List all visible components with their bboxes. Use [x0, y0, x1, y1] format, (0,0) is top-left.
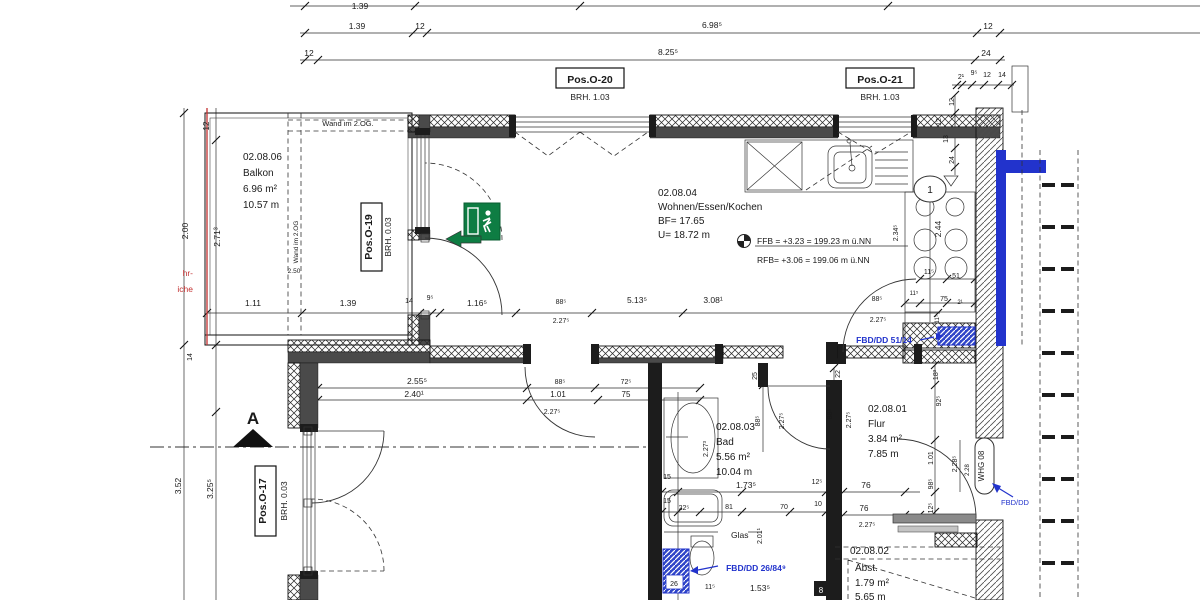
dimension-lines	[180, 2, 1200, 600]
dim-label: 92⁵	[936, 396, 943, 407]
dim-label: 2.27⁵	[870, 317, 887, 324]
dim-label: 72⁵	[621, 379, 632, 386]
dim-label: 75	[940, 296, 948, 303]
shower-tray	[664, 490, 722, 526]
dim-label: 12	[202, 121, 211, 130]
room-bad-area: 5.56 m²	[716, 452, 751, 463]
window-pos-o20	[509, 115, 656, 156]
pos-o19-tag: Pos.O-19	[363, 214, 375, 260]
dim-label: 1.73⁵	[736, 480, 756, 490]
red-label-2: iche	[177, 284, 193, 294]
dim-label: 3.08¹	[703, 295, 723, 305]
room-wohnen-name: Wohnen/Essen/Kochen	[658, 202, 762, 213]
exit-sign	[446, 203, 500, 247]
dim-label: 12	[983, 21, 993, 31]
dim-label: 25	[752, 372, 759, 380]
red-label-1: hr-	[183, 268, 194, 278]
dim-label: 10	[814, 501, 822, 508]
dim-label: 1.01	[550, 390, 566, 399]
room-flur-perimeter: 7.85 m	[868, 449, 899, 460]
dim-label: 76	[861, 480, 871, 490]
room-flur-id: 02.08.01	[868, 404, 907, 415]
dim-label: 2.27⁵	[846, 412, 853, 429]
dim-label: 8.25⁵	[658, 47, 678, 57]
dim-label: 12⁵	[928, 503, 935, 514]
fbd-label-2: FBD/DD 26/84⁹	[726, 563, 786, 573]
pos-o19-brh: BRH. 0.03	[383, 217, 393, 256]
dim-label: 1.16⁵	[467, 298, 487, 308]
room-wohnen-bf: BF= 17.65	[658, 216, 705, 227]
section-letter: A	[247, 409, 259, 428]
bathtub	[664, 398, 718, 478]
dim-label: 12	[304, 48, 314, 58]
dim-label: 88⁵	[556, 299, 567, 306]
neighbour-railing	[1022, 110, 1078, 600]
dim-label: 75	[622, 390, 631, 399]
dim-label: 2.40¹	[404, 389, 424, 399]
dim-label: 2.44	[933, 220, 943, 237]
dim-label: 2.27³	[703, 440, 710, 457]
dim-label: 98⁵	[928, 479, 935, 490]
dim-label: 2.71³	[212, 227, 222, 247]
dim-label: 1.39	[349, 21, 366, 31]
dim-label: 11⁵	[934, 314, 941, 323]
dim-label: 1.39	[340, 298, 357, 308]
dim-label: 12	[949, 98, 956, 106]
dim-label: 88⁵	[555, 379, 566, 386]
dim-label: 22	[835, 370, 842, 378]
wand-2og-label-h: Wand im 2.OG.	[322, 119, 373, 128]
dim-label: 1.01	[928, 451, 935, 465]
dim-label: 2.27⁵	[779, 413, 786, 430]
dim-label: 6.98⁵	[702, 20, 722, 30]
room-bad-perimeter: 10.04 m	[716, 467, 752, 478]
detail-box	[1012, 66, 1028, 112]
dim-label: 13	[943, 135, 950, 143]
dim-label: 12⁵	[812, 479, 823, 486]
whg-capsule: WHG 08	[975, 438, 1013, 497]
dim-label: 2.27⁵	[859, 522, 876, 529]
whg-label: WHG 08	[977, 450, 986, 481]
pos-o20-brh: BRH. 1.03	[570, 92, 609, 102]
room-abst-name: Abst.	[855, 563, 878, 574]
dim-label: 18³	[933, 369, 940, 380]
dim-label: 9⁵	[427, 295, 434, 302]
dim-label: 15	[663, 498, 671, 505]
room-bad-id: 02.08.03	[716, 422, 755, 433]
room-balkon-name: Balkon	[243, 168, 274, 179]
window-pos-o21	[833, 115, 917, 154]
dim-label: 1.39	[352, 1, 369, 11]
dim-label: 5.13⁵	[627, 295, 647, 305]
room-balkon-id: 02.08.06	[243, 152, 282, 163]
room-wohnen-id: 02.08.04	[658, 188, 697, 199]
dim-label: 24	[981, 48, 991, 58]
dim-label: 1.11	[245, 298, 261, 308]
dim-label: 2.27⁵	[544, 409, 561, 416]
running-man-icon	[485, 210, 490, 215]
level-marker	[738, 235, 751, 248]
room-balkon-area: 6.96 m²	[243, 184, 278, 195]
doors	[304, 163, 977, 575]
blue-facade-window	[996, 150, 1006, 346]
dim-label: 12	[415, 21, 425, 31]
pos-o20-tag: Pos.O-20	[567, 74, 613, 86]
dim-label: 14	[998, 72, 1006, 79]
window-pos-o19	[415, 128, 430, 234]
dim-label: 2¹	[957, 300, 962, 306]
fbd-label-3: FBD/DD	[1001, 498, 1030, 507]
dim-label: 2.55⁵	[407, 376, 427, 386]
dim-label: 2.27⁵	[553, 318, 570, 325]
dim-label: 88⁵	[872, 296, 883, 303]
chip-26: 26	[670, 581, 678, 588]
dim-label: 2.00	[180, 222, 190, 239]
fbd-label-1: FBD/DD 51/14	[856, 335, 912, 345]
dim-label: 70	[780, 504, 788, 511]
room-abst-area: 1.79 m²	[855, 578, 890, 589]
room-flur-name: Flur	[868, 419, 886, 430]
dim-label: 12	[983, 72, 991, 79]
pos-o21-brh: BRH. 1.03	[860, 92, 899, 102]
level-rfb: RFB= +3.06 = 199.06 m ü.NN	[757, 255, 870, 265]
dim-label: 15	[663, 474, 671, 481]
dim-label: 76	[860, 504, 869, 513]
detail-circle: 1	[914, 176, 958, 322]
section-triangle	[233, 429, 273, 447]
floorplan-canvas: { "colors": {"black":"#1a1a1a","blue":"#…	[0, 0, 1200, 600]
pos-o17-brh: BRH. 0.03	[279, 481, 289, 520]
room-wohnen-u: U= 18.72 m	[658, 230, 710, 241]
wand-2og-label-v: Wand im 2.OG	[293, 221, 300, 264]
dim-label: 1.53⁵	[750, 583, 770, 593]
level-ffb: FFB = +3.23 = 199.23 m ü.NN	[757, 236, 871, 246]
bath-door	[768, 386, 830, 449]
dim-label: 88⁵	[827, 409, 834, 420]
room-bad-name: Bad	[716, 437, 734, 448]
dim-label: 9⁵	[971, 70, 978, 77]
room-abst-perimeter: 5.65 m	[855, 592, 886, 600]
dim-label: 11⁵	[924, 269, 934, 276]
dim-label: 3.25⁵	[205, 479, 215, 499]
dim-label: 2.28⁵	[952, 456, 959, 473]
dim-label: 11⁵	[910, 290, 919, 297]
dim-label: 2.34⁵	[893, 225, 900, 242]
floorplan-svg: A 1 WHG 08 02.08.06 Balkon 6.9	[0, 0, 1200, 600]
pos-o17-tag: Pos.O-17	[257, 478, 269, 524]
dimension-labels: 1.391.39126.98⁵12128.25⁵242¹9⁵1214121213…	[173, 1, 1006, 593]
dim-label: 3.52	[173, 477, 183, 494]
room-flur-area: 3.84 m²	[868, 434, 903, 445]
dim-label: 2.01¹	[757, 527, 764, 544]
sink-bowl	[946, 198, 964, 216]
detail-number: 1	[927, 185, 933, 196]
dim-label: 51	[952, 273, 960, 280]
section-marker: A	[150, 409, 648, 447]
dim-label: 88⁵	[755, 416, 762, 427]
dim-label: 2¹	[958, 74, 965, 81]
dim-label: 14	[187, 353, 194, 361]
hob-burner	[945, 229, 967, 251]
dim-label: 2.28	[965, 464, 971, 476]
balcony-double-door	[304, 427, 384, 575]
room-abst-id: 02.08.02	[850, 546, 889, 557]
chip-8: 8	[819, 586, 824, 595]
glas-label: Glas	[731, 530, 748, 540]
dim-label: 81	[725, 504, 733, 511]
dim-label: 14	[405, 298, 413, 305]
dim-label: 12	[936, 118, 943, 126]
living-room-door	[525, 367, 595, 437]
dim-label: 22⁵	[679, 505, 690, 512]
dim-label: 24	[949, 156, 956, 164]
pos-o21-tag: Pos.O-21	[857, 74, 903, 86]
dim-label: 2.50	[288, 268, 301, 275]
dim-label: 11⁵	[705, 584, 715, 591]
room-balkon-perimeter: 10.57 m	[243, 200, 279, 211]
